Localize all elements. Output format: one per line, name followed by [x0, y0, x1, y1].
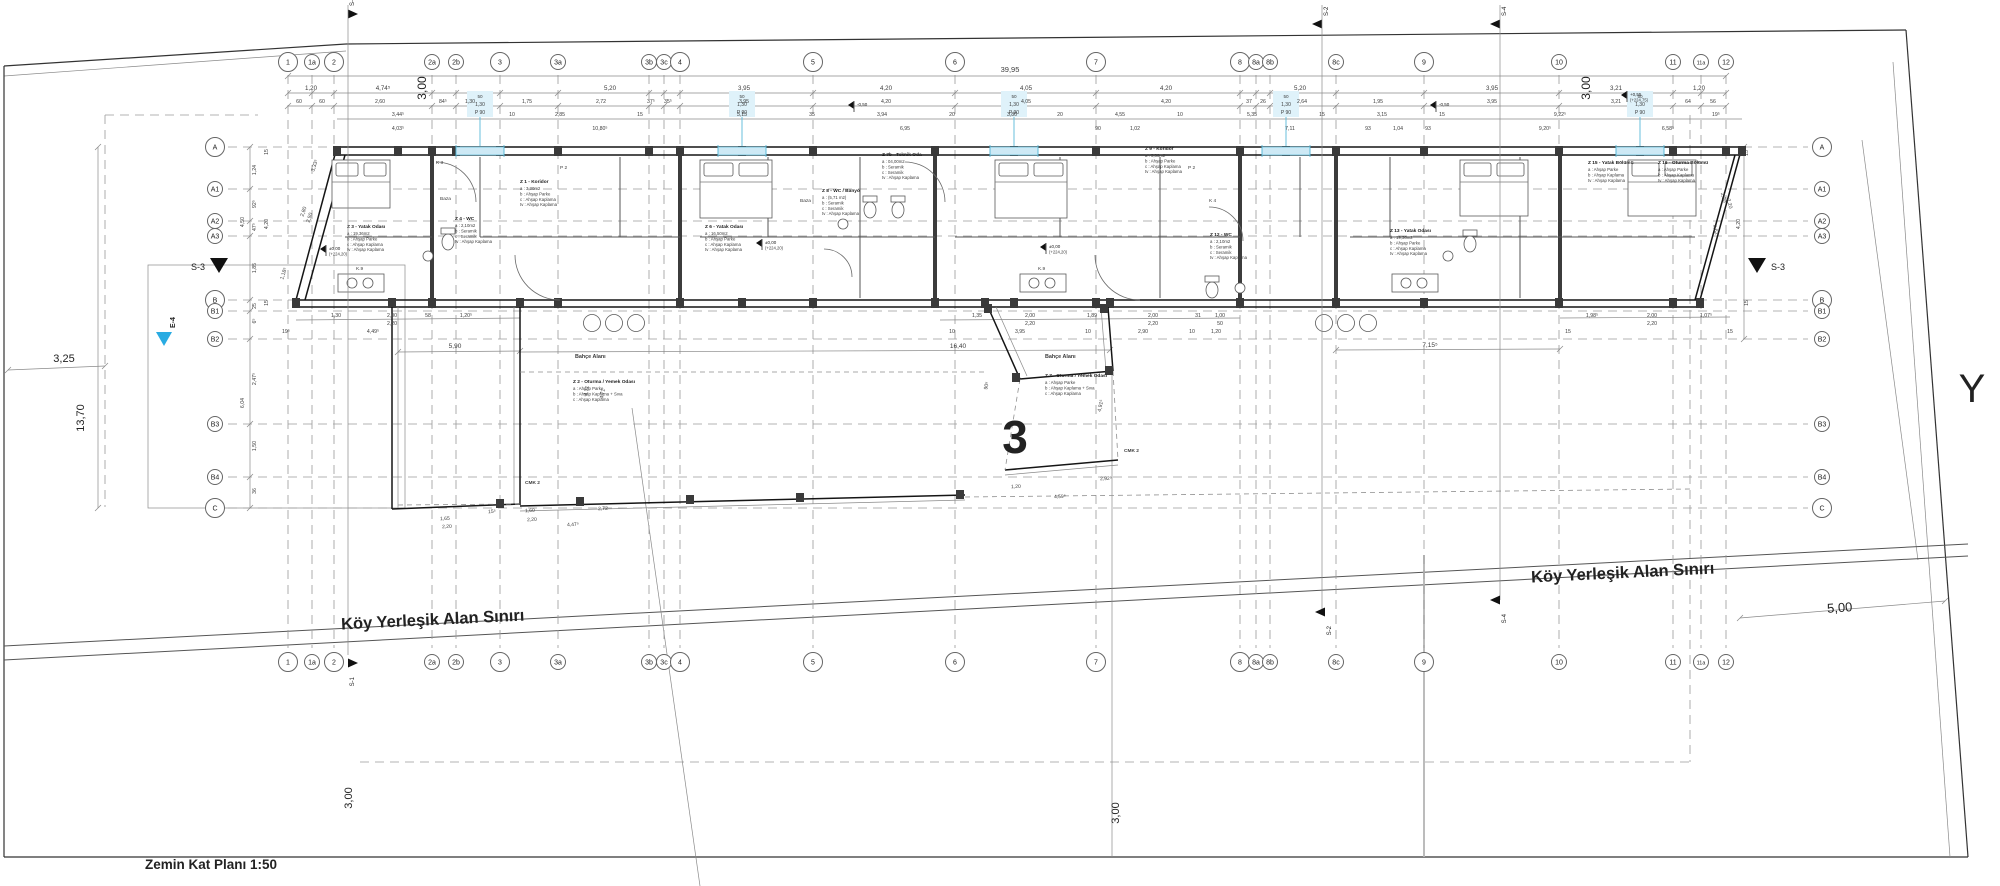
plan-line	[1108, 307, 1113, 371]
dim-text: 4,20	[1736, 219, 1742, 229]
room-finish-item: tv : Ahşap Kaplama	[1588, 178, 1626, 183]
room-finish-item: tv : Ahşap Kaplama	[882, 175, 920, 180]
site-border	[1862, 140, 1918, 560]
annotation-tag: K 3	[436, 160, 444, 166]
room-finish-item: b : Ahşap Kaplama + Sıva	[573, 391, 623, 396]
dim-text: 60	[319, 99, 325, 105]
dim-text: 1,20	[1693, 85, 1706, 92]
grid-bubble-label: B1	[1818, 308, 1827, 315]
room-finish-item: tv : Ahşap Kaplama	[1658, 178, 1696, 183]
grid-bubble-8b: 8b	[1263, 55, 1278, 70]
wall-pier	[394, 146, 402, 156]
section-marker-S-2: S-2	[1315, 608, 1333, 636]
dim-text: 4,20	[880, 85, 893, 92]
section-marker-E-4: E-4	[156, 317, 177, 346]
grid-bubble-label: 11a	[1697, 660, 1707, 666]
dim-text: 4,20	[1161, 99, 1171, 105]
dim-text: 10	[1177, 112, 1183, 118]
wall-pier	[1332, 298, 1340, 308]
grid-bubble-label: 11a	[1697, 60, 1707, 66]
dim-text: 64	[1685, 99, 1691, 105]
garden-pier	[956, 490, 964, 499]
grid-bubble-label: 2	[332, 659, 336, 666]
room-finish-item: tv : Ahşap Kaplama	[1390, 251, 1428, 256]
grid-bubble-label: 3	[498, 59, 502, 66]
dim-text: 5,20	[1294, 85, 1307, 92]
room-finish-item: b : Ahşap Kaplama	[1658, 172, 1695, 177]
room-name: Z 16 - Oturma Bölümü	[1658, 160, 1708, 166]
dim-text: 15⁵	[488, 509, 496, 515]
dim-text: 90	[1095, 126, 1101, 132]
el-value: +0,55	[1630, 92, 1642, 97]
grid-bubble-label: B4	[211, 474, 220, 481]
window-dim: 50	[1283, 94, 1289, 99]
room-name: Z 9 - Koridor	[1145, 146, 1174, 152]
dim-text: 3,95	[738, 85, 751, 92]
grid-bubble-label: 2a	[428, 659, 436, 666]
dim-text: 3,95	[739, 99, 749, 105]
sink	[423, 251, 433, 261]
dim-text: 10	[509, 112, 515, 118]
dim-overall: 39,95	[1001, 65, 1020, 74]
window-dim: 1,30	[475, 102, 485, 108]
grid-bubble-label: 4	[678, 59, 682, 66]
grid-bubble-label: A3	[1818, 233, 1827, 240]
annotation-tag: K.9	[1038, 266, 1046, 272]
room-name: Z 1 - Koridor	[520, 179, 549, 185]
window-tag: P 90	[1635, 110, 1645, 116]
toilet	[441, 228, 455, 250]
grid-bubble-label: 8b	[1266, 59, 1274, 66]
room-label: Z 8 - WC / Banyoa : (5,71 m2)b : Seramik…	[822, 188, 860, 216]
grid-bubble-6: 6	[946, 653, 965, 672]
section-marker-S-1: S-1	[348, 659, 358, 687]
garden-pier	[686, 495, 694, 504]
room-finish-item: tv : Ahşap Kaplama	[520, 202, 558, 207]
grid-bubble-label: B3	[1818, 421, 1827, 428]
dim-text: 4,05	[1021, 99, 1031, 105]
room-finish-item: b : Ahşap Parke	[347, 236, 378, 241]
grid-bubble-8c: 8c	[1329, 55, 1344, 70]
room-finish-item: b : Ahşap Kaplama	[1588, 172, 1625, 177]
grid-bubble-10: 10	[1552, 655, 1567, 670]
room-finish-item: b : Seramik	[882, 164, 905, 169]
column-circle	[1360, 315, 1377, 332]
grid-bubble-C: C	[1813, 499, 1832, 518]
garden-pier	[576, 497, 584, 506]
grid-bubble-label: 3c	[660, 59, 668, 66]
window-tag: P 90	[475, 110, 485, 116]
grid-bubble-label: 3	[498, 659, 502, 666]
window-dim: 1,30	[1635, 102, 1645, 108]
room-finish-item: c : Ahşap Kaplama	[347, 242, 383, 247]
grid-bubble-label: 3a	[554, 59, 562, 66]
grid-bubble-A3: A3	[208, 229, 223, 244]
grid-bubble-label: 5	[811, 659, 815, 666]
room-label: Z 13 - Yatak Odasıa : 19,36m2b : Ahşap P…	[1390, 228, 1431, 256]
grid-bubble-A1: A1	[208, 182, 223, 197]
window-tag: P 90	[1281, 110, 1291, 116]
grid-bubble-label: 11	[1669, 59, 1676, 66]
room-label: Z 6 - Yatak Odasıa : 16,50m2b : Ahşap Pa…	[705, 224, 743, 252]
wall-pier	[931, 298, 939, 308]
grid-bubble-3: 3	[491, 653, 510, 672]
room-finish-item: a : 3,30m2	[1145, 153, 1166, 158]
wall-pier	[1420, 146, 1428, 156]
elevation-marker: -0,50	[848, 101, 868, 112]
dim-text: 1,24	[252, 165, 258, 175]
grid-bubble-9: 9	[1415, 53, 1434, 72]
wall-pier	[809, 146, 817, 156]
wall-pier	[676, 298, 684, 308]
room-finish-item: a : 2,10m2	[1210, 239, 1231, 244]
room-label: Z 9 - Koridora : 3,30m2b : Ahşap Parkec …	[1145, 146, 1183, 174]
window	[990, 147, 1038, 155]
room-finish-item: a : (5,71 m2)	[822, 195, 847, 200]
room-finish-item: b : Seramik	[1210, 244, 1233, 249]
dim-text: 36	[252, 488, 258, 494]
dim-text: 2,20	[1148, 321, 1158, 327]
grid-bubble-8b: 8b	[1263, 655, 1278, 670]
dim-text: 15	[637, 112, 643, 118]
wall-pier	[809, 298, 817, 308]
annotation-tag: P 2	[1188, 165, 1195, 171]
dim-text: 90⁵	[983, 381, 991, 390]
dim-text: 10	[1085, 329, 1091, 335]
dim-text: 4,20	[1160, 85, 1173, 92]
wall-pier	[1555, 298, 1563, 308]
room-finish-item: a : 04,00m2	[882, 159, 905, 164]
dim-text: 4,20	[264, 219, 270, 229]
grid-bubble-3c: 3c	[657, 55, 672, 70]
grid-bubble-label: 8	[1238, 59, 1242, 66]
annotation-tag: Bahçe Alanı	[575, 354, 606, 360]
window	[456, 147, 504, 155]
room-finish-item: a : Ahşap Parke	[1045, 380, 1076, 385]
el-value: -0,50	[1439, 102, 1450, 107]
dim-text: 1,50	[252, 441, 258, 451]
room-label: Z 7 - Oturma / Yemek Odasıa : Ahşap Park…	[1045, 373, 1107, 396]
door-arc	[515, 255, 560, 300]
dim-text: 93	[1365, 126, 1371, 132]
column-circle	[1338, 315, 1355, 332]
dim-text: 3,33⁵	[310, 159, 319, 173]
door-arc	[905, 162, 945, 202]
dim-text: 20	[949, 112, 955, 118]
elevation-marker: ±0,00(+224,20)	[320, 245, 348, 257]
wall-pier	[1092, 298, 1100, 308]
grid-bubble-label: B4	[1818, 474, 1827, 481]
dim-text: 15	[264, 300, 270, 306]
site-line	[632, 408, 700, 886]
toilet	[1205, 276, 1219, 298]
room-finish-item: tv : Ahşap Kaplama	[455, 239, 493, 244]
grid-bubble-6: 6	[946, 53, 965, 72]
room-label: Z 7b - Teknik Odaa : 04,00m2b : Seramikc…	[882, 152, 922, 180]
grid-bubble-label: 6	[953, 659, 957, 666]
grid-bubble-12: 12	[1719, 655, 1734, 670]
grid-bubble-2a: 2a	[425, 55, 440, 70]
plan-line	[1005, 465, 1118, 475]
grid-bubble-11a: 11a	[1694, 55, 1709, 70]
room-finish-item: a : 19,36m2	[347, 231, 370, 236]
room-finish-item: c : Ahşap Kaplama	[1045, 391, 1081, 396]
dim-text: 37⁵	[647, 99, 655, 105]
grid-bubble-7: 7	[1087, 53, 1106, 72]
kitchen-counter	[1020, 274, 1066, 292]
bed	[1460, 160, 1528, 216]
grid-bubble-5: 5	[804, 53, 823, 72]
dim-text: 4,05	[1020, 85, 1033, 92]
dim-text: 2,85	[555, 112, 565, 118]
room-finish-item: tv : Ahşap Kaplama	[347, 247, 385, 252]
room-name: Z 7b - Teknik Oda	[882, 152, 922, 158]
parcel-letter: Y	[1959, 367, 1986, 411]
drawing-title: Zemin Kat Planı 1:50	[145, 857, 277, 872]
room-label: Z 3 - Yatak Odasıa : 19,36m2b : Ahşap Pa…	[347, 224, 385, 252]
grid-bubble-label: A	[1820, 144, 1825, 151]
dim-text: 1,07⁵	[1700, 313, 1712, 319]
section-marker-S-1: S-1	[348, 0, 358, 19]
dim-text: 2,72	[596, 99, 606, 105]
dim-text: 1,02	[1130, 126, 1140, 132]
room-finish-item: c : Seramik	[882, 170, 904, 175]
window	[1262, 147, 1310, 155]
garden-pier	[496, 499, 504, 508]
grid-bubble-label: B2	[211, 336, 220, 343]
room-finish-item: c : Ahşap Kaplama	[705, 242, 741, 247]
dim-text: 3,95	[1487, 99, 1497, 105]
room-finish-item: c : Ahşap Kaplama	[573, 397, 609, 402]
wall-pier	[1010, 298, 1018, 308]
dim-text: 3,15	[1377, 112, 1387, 118]
dim-text: 1,18⁵	[279, 267, 288, 281]
dim-text: 47⁵	[252, 223, 258, 231]
column-circle	[606, 315, 623, 332]
grid-bubble-A: A	[1813, 138, 1832, 157]
dim-text: 2,20	[527, 517, 537, 524]
site-border	[346, 30, 1906, 44]
dim-text: 31	[1195, 313, 1201, 319]
dim-text: 2,72	[598, 506, 608, 513]
grid-bubble-label: 12	[1722, 659, 1730, 666]
el-value: ±0,00	[1049, 244, 1061, 249]
grid-bubble-9: 9	[1415, 653, 1434, 672]
room-finish-item: c : Ahşap Kaplama	[520, 197, 556, 202]
room-finish-item: c : Seramik	[822, 206, 844, 211]
dim-text: 1,89	[1087, 313, 1097, 319]
section-label: S-2	[1324, 6, 1330, 16]
plan-canvas: 111a1a222a2a2b2b333a3a3b3b3c3c4455667788…	[0, 0, 2000, 886]
grid-bubble-label: 3c	[660, 659, 668, 666]
dim-text: 2,20	[1647, 321, 1657, 327]
garden-pier	[1100, 304, 1108, 313]
dim-text: 60	[296, 99, 302, 105]
grid-bubble-8a: 8a	[1249, 55, 1264, 70]
grid-bubble-label: 8c	[1332, 659, 1340, 666]
site-border	[1906, 30, 1968, 857]
section-label: S-2	[1327, 625, 1333, 635]
wall-pier	[1332, 146, 1340, 156]
dim-text: 3,21	[1611, 99, 1621, 105]
garden-line	[965, 489, 1690, 497]
grid-bubble-label: 2	[332, 59, 336, 66]
section-label: S-4	[1502, 613, 1508, 623]
grid-bubble-label: 8a	[1252, 59, 1260, 66]
room-finish-item: c : Seramik	[455, 234, 477, 239]
section-label: S-3	[191, 262, 205, 272]
dim-text: 2,20	[387, 321, 397, 327]
el-datum: (+224,20)	[1049, 250, 1068, 255]
dim-text: 1,85	[252, 263, 258, 273]
grid-bubble-label: A2	[211, 218, 220, 225]
dim-text: 4,55	[1115, 112, 1125, 118]
dim-text: 9,22⁵	[1554, 112, 1566, 118]
grid-bubble-A1: A1	[1815, 182, 1830, 197]
grid-bubble-2b: 2b	[449, 655, 464, 670]
annotation-tag: Baza	[800, 198, 811, 204]
wall-pier	[1555, 146, 1563, 156]
grid-bubble-11a: 11a	[1694, 655, 1709, 670]
door-arc	[1095, 255, 1140, 300]
grid-bubble-2b: 2b	[449, 55, 464, 70]
wall-pier	[1722, 146, 1730, 156]
grid-bubble-10: 10	[1552, 55, 1567, 70]
section-marker-S-3: S-3	[191, 258, 228, 273]
grid-bubble-1a: 1a	[305, 655, 320, 670]
grid-bubble-label: 12	[1722, 59, 1730, 66]
dim-590: 5,90	[449, 343, 462, 350]
room-finish-item: b : Ahşap Parke	[1390, 240, 1421, 245]
dim-1640: 16,40	[950, 343, 967, 350]
dim-text: 84⁵	[439, 99, 447, 105]
el-datum: (+224,75)	[1630, 98, 1649, 103]
grid-bubble-label: 9	[1422, 59, 1426, 66]
dim-text: 5,20	[604, 85, 617, 92]
dim-text: 1,20	[1211, 329, 1221, 335]
grid-bubble-label: 8	[1238, 659, 1242, 666]
wall-pier	[388, 298, 396, 308]
grid-bubble-8: 8	[1231, 53, 1250, 72]
room-finish-item: a : Ahşap Parke	[573, 386, 604, 391]
grid-bubble-8: 8	[1231, 653, 1250, 672]
el-datum: (+224,20)	[329, 252, 348, 257]
dim-text: 4,20	[881, 99, 891, 105]
column-circle	[584, 315, 601, 332]
room-name: Z 13 - Yatak Odası	[1390, 228, 1431, 234]
grid-bubble-label: 8a	[1252, 659, 1260, 666]
dim-text: 2,64	[1297, 99, 1307, 105]
wall-pier	[1092, 146, 1100, 156]
grid-bubble-label: B3	[211, 421, 220, 428]
room-finish-item: c : Ahşap Kaplama	[1145, 164, 1181, 169]
dim-text: 6,04	[240, 398, 246, 408]
room-finish-item: a : Ahşap Parke	[1658, 167, 1689, 172]
dim-text: 20	[1057, 112, 1063, 118]
dim-text: 4,47⁵	[567, 522, 579, 529]
grid-bubble-label: 1	[286, 659, 290, 666]
grid-bubble-C: C	[206, 499, 225, 518]
dim-text: 4,62	[1711, 224, 1719, 235]
dim-text: 93	[1425, 126, 1431, 132]
block-number: 3	[1002, 411, 1028, 463]
dim-text: 6⁵	[252, 318, 258, 323]
dim-text: 2,00	[387, 313, 397, 319]
room-name: Z 2 - Oturma / Yemek Odası	[573, 379, 635, 385]
dim-text: 58	[425, 313, 431, 319]
section-marker-S-2: S-2	[1312, 6, 1330, 29]
window	[718, 147, 766, 155]
grid-bubble-A: A	[206, 138, 225, 157]
room-name: Z 6 - Yatak Odası	[705, 224, 743, 230]
room-finish-item: c : Ahşap Kaplama	[1390, 246, 1426, 251]
dim-text: 2,90	[1138, 329, 1148, 335]
dim-text: 26	[1260, 99, 1266, 105]
dim-text: 15	[1727, 329, 1733, 335]
grid-bubble-B3: B3	[208, 417, 223, 432]
section-marker-S-3: S-3	[1748, 258, 1785, 273]
room-finish-item: a : Ahşap Parke	[1588, 167, 1619, 172]
wall-pier	[1696, 298, 1704, 308]
dim-text: 3,95	[1015, 329, 1025, 335]
dim-text: 37	[1246, 99, 1252, 105]
grid-bubble-2a: 2a	[425, 655, 440, 670]
column-circle	[628, 315, 645, 332]
dim-text: 9,20⁵	[1539, 126, 1551, 132]
grid-bubble-3a: 3a	[551, 655, 566, 670]
grid-bubble-12: 12	[1719, 55, 1734, 70]
wall-pier	[428, 298, 436, 308]
dim-text: 3,15	[737, 112, 747, 118]
dim-text: 3,95	[1486, 85, 1499, 92]
el-value: -0,50	[857, 102, 868, 107]
dim-text: 1,35	[972, 313, 982, 319]
grid-bubble-label: A1	[1818, 186, 1827, 193]
grid-bubble-label: 3b	[645, 659, 653, 666]
annotation-tag: Baza	[440, 196, 451, 202]
room-finish-item: tv : Ahşap Kaplama	[822, 211, 860, 216]
annotation-tag: CMK 2	[1124, 448, 1139, 454]
grid-bubble-1: 1	[279, 53, 298, 72]
kitchen-counter	[338, 274, 384, 292]
dim-text: 1,20⁵	[460, 313, 472, 319]
grid-bubble-label: 9	[1422, 659, 1426, 666]
grid-bubble-2: 2	[325, 53, 344, 72]
grid-bubble-label: B2	[1818, 336, 1827, 343]
wall-pier	[1236, 298, 1244, 308]
dim-text: 2,47⁵	[252, 373, 258, 385]
site-dim-325: 3,25	[53, 353, 74, 365]
dim-text: 7,11	[1285, 126, 1295, 132]
wall-pier	[931, 146, 939, 156]
wall-pier	[428, 146, 436, 156]
plan-line	[8, 366, 105, 370]
room-name: Z 12 - WC	[1210, 232, 1232, 238]
grid-bubble-label: 10	[1555, 59, 1563, 66]
grid-bubble-label: 7	[1094, 659, 1098, 666]
dim-text: 2,00	[1025, 313, 1035, 319]
bed	[995, 160, 1067, 218]
room-finish-item: c : Seramik	[1210, 250, 1232, 255]
door-arc	[824, 249, 852, 277]
garden-pier	[1012, 373, 1020, 382]
wall-pier	[554, 146, 562, 156]
dim-text: 1,95	[1373, 99, 1383, 105]
room-finish-item: a : 16,50m2	[705, 231, 728, 236]
window-dim: 1,30	[1009, 102, 1019, 108]
grid-bubble-5: 5	[804, 653, 823, 672]
floor-plan-sheet: 111a1a222a2a2b2b333a3a3b3b3c3c4455667788…	[0, 0, 2000, 886]
